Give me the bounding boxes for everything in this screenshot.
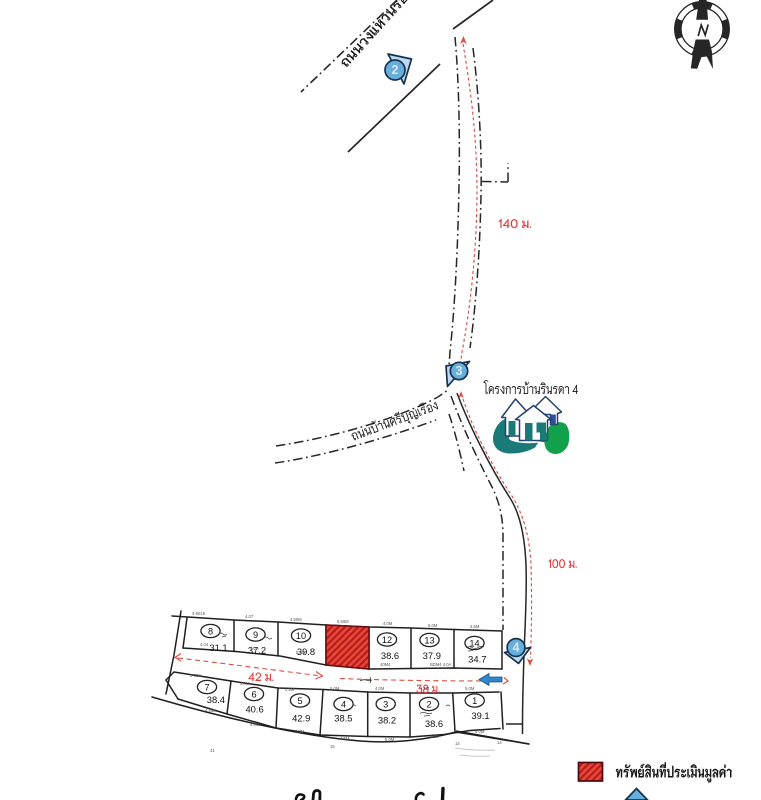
svg-text:4.5Mx: 4.5Mx [205,708,217,713]
svg-text:4.0M: 4.0M [240,681,250,686]
svg-text:38.6: 38.6 [381,650,399,661]
svg-text:38.6: 38.6 [425,718,443,729]
svg-text:10: 10 [296,631,306,641]
svg-text:3-50%: 3-50% [190,673,202,678]
svg-text:38.2: 38.2 [378,715,396,726]
svg-text:5.0M: 5.0M [296,650,306,655]
svg-text:4.5M: 4.5M [340,736,350,741]
svg-text:39.1: 39.1 [471,710,489,721]
svg-text:3: 3 [456,364,463,378]
svg-text:4.50M: 4.50M [290,617,302,622]
svg-text:13: 13 [424,636,434,646]
svg-text:3: 3 [383,700,388,710]
svg-text:4.0A: 4.0A [250,646,259,651]
svg-text:41: 41 [210,748,215,753]
svg-text:3-5016: 3-5016 [192,611,206,616]
svg-text:5.0M: 5.0M [330,686,340,691]
svg-text:42.9: 42.9 [292,713,310,724]
svg-text:4: 4 [513,641,520,655]
svg-text:7: 7 [204,683,209,693]
svg-text:4.5M: 4.5M [420,686,430,691]
svg-text:37.9: 37.9 [423,650,441,661]
svg-text:4.5M: 4.5M [430,734,440,739]
svg-text:4.07: 4.07 [245,614,254,619]
svg-text:40.6: 40.6 [245,704,263,715]
svg-text:4.5M: 4.5M [470,624,480,629]
svg-text:9: 9 [253,630,258,640]
svg-text:31.1: 31.1 [209,642,227,653]
svg-text:4.0M: 4.0M [475,729,485,734]
svg-text:15: 15 [330,744,335,749]
svg-text:2: 2 [426,700,431,710]
svg-text:12: 12 [382,635,392,645]
svg-text:BDM4 4.0A: BDM4 4.0A [430,662,452,667]
svg-text:8: 8 [208,627,213,637]
svg-text:38.5: 38.5 [334,713,352,724]
svg-text:5.50M: 5.50M [337,619,349,624]
svg-text:38.4: 38.4 [207,694,225,705]
svg-text:1: 1 [472,696,477,706]
svg-text:4.5M: 4.5M [285,687,295,692]
svg-text:5.0M: 5.0M [465,686,475,691]
svg-text:2: 2 [392,63,399,77]
svg-text:40M4: 40M4 [380,662,391,667]
svg-text:4.0M: 4.0M [383,621,393,626]
svg-text:5.0M: 5.0M [295,729,305,734]
svg-text:4.04: 4.04 [200,642,209,647]
svg-text:5: 5 [297,696,302,706]
svg-text:34.7: 34.7 [468,654,486,665]
svg-text:4.0M: 4.0M [375,686,385,691]
svg-text:4: 4 [341,700,346,710]
svg-text:4.0M: 4.0M [250,722,260,727]
svg-text:5.0M: 5.0M [385,737,395,742]
svg-text:5.0M: 5.0M [428,623,438,628]
svg-text:14: 14 [455,741,460,746]
svg-text:6: 6 [251,690,256,700]
svg-text:14: 14 [497,740,502,745]
